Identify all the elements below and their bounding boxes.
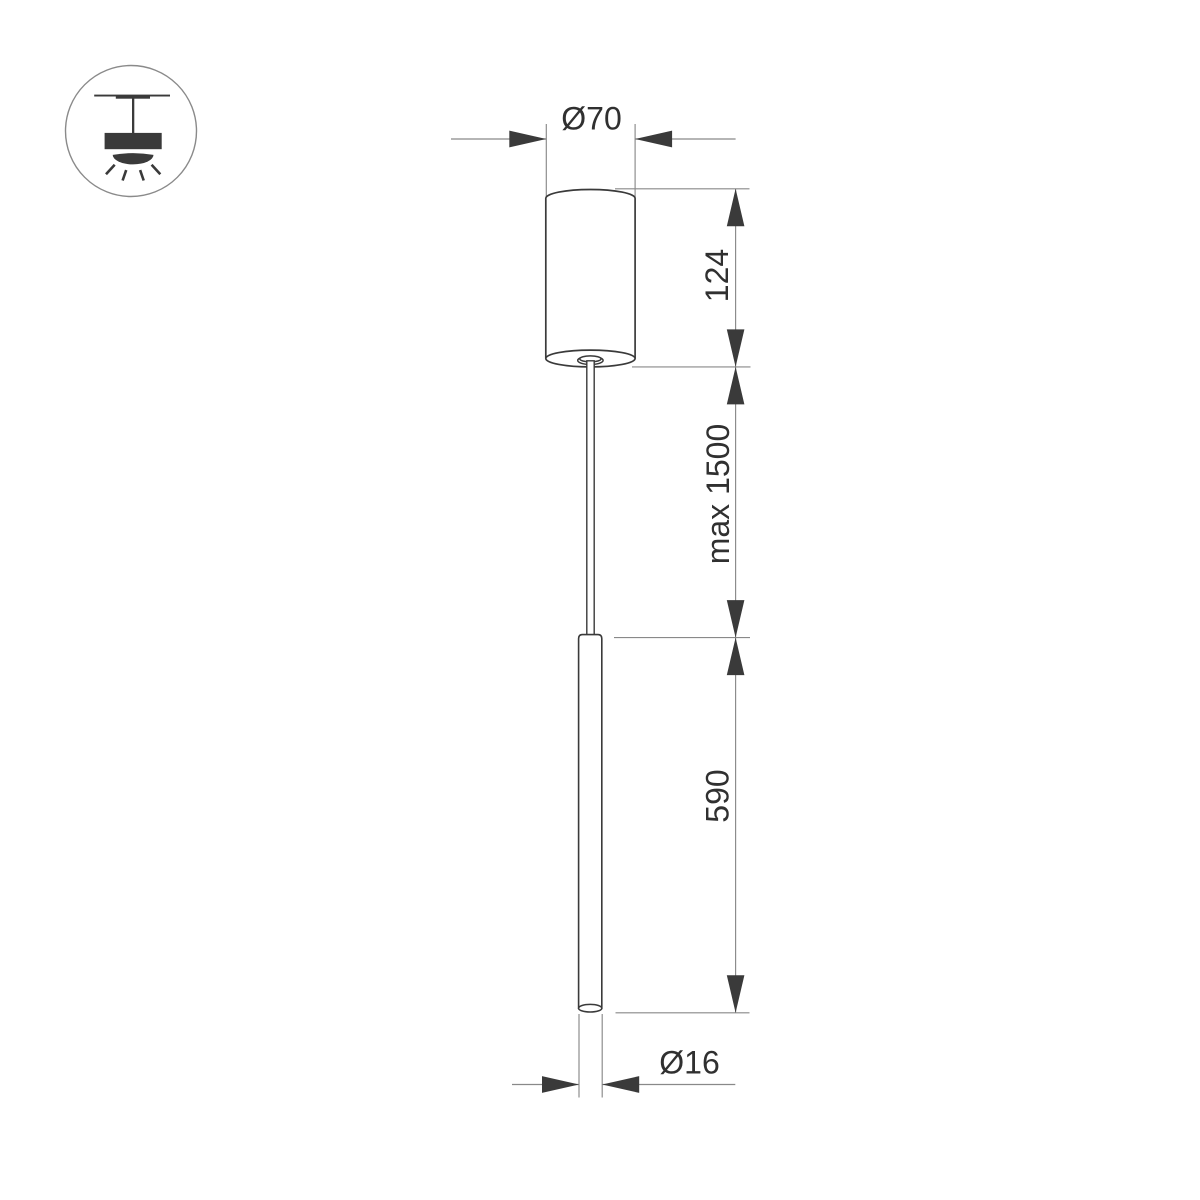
- svg-text:max 1500: max 1500: [700, 424, 736, 565]
- svg-text:124: 124: [699, 249, 735, 302]
- svg-text:590: 590: [700, 769, 736, 822]
- svg-text:Ø16: Ø16: [659, 1045, 719, 1081]
- svg-text:Ø70: Ø70: [561, 101, 621, 137]
